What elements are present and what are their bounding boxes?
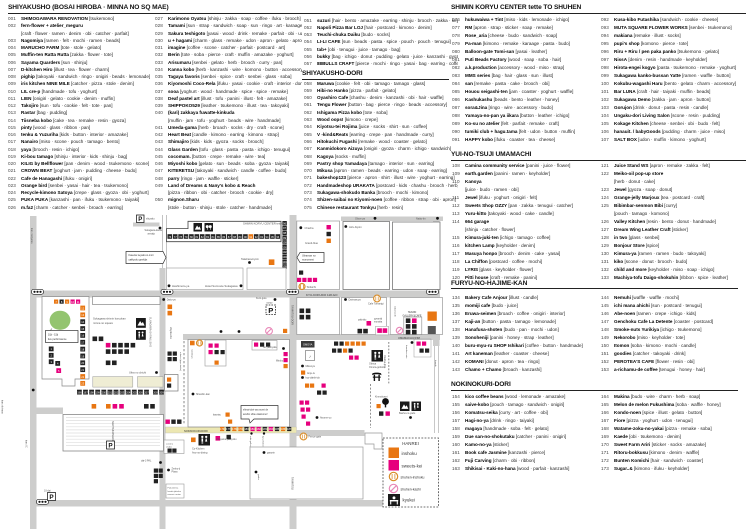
svg-text:itaru Koriyama: itaru Koriyama bbox=[30, 228, 33, 244]
svg-text:196: 196 bbox=[77, 390, 82, 394]
svg-text:Ultra no chichi: Ultra no chichi bbox=[129, 370, 146, 374]
svg-text:204: 204 bbox=[126, 390, 131, 394]
svg-text:Anje-ru: Anje-ru bbox=[307, 372, 316, 375]
svg-text:itaru eki-mae: itaru eki-mae bbox=[1, 400, 4, 414]
svg-text:200: 200 bbox=[102, 390, 107, 394]
svg-text:197: 197 bbox=[83, 390, 88, 394]
svg-text:Grand-blue: Grand-blue bbox=[305, 241, 319, 245]
svg-text:shuhen-kashi: shuhen-kashi bbox=[401, 487, 421, 491]
svg-text:kasetsu: kasetsu bbox=[213, 414, 222, 417]
svg-text:201: 201 bbox=[108, 390, 113, 394]
svg-text:Plaza: Plaza bbox=[172, 471, 179, 474]
svg-text:TAIMATSU: TAIMATSU bbox=[291, 477, 295, 490]
svg-text:u-kairo (ippo-tsuko): u-kairo (ippo-tsuko) bbox=[179, 352, 182, 371]
svg-text:sanshu: sanshu bbox=[166, 443, 174, 445]
svg-text:kyu-shoten: kyu-shoten bbox=[262, 436, 265, 447]
svg-text:178: 178 bbox=[232, 427, 237, 431]
svg-text:Fence-gate: Fence-gate bbox=[309, 436, 322, 439]
svg-text:OMOYA: OMOYA bbox=[303, 343, 313, 347]
svg-text:anshin shite okaimono!: anshin shite okaimono! bbox=[243, 413, 268, 416]
svg-text:SUKAGAWA-SHIYAKUSHO: SUKAGAWA-SHIYAKUSHO bbox=[149, 317, 152, 347]
svg-text:Obon-ya: Obon-ya bbox=[355, 217, 366, 221]
svg-text:100: 100 bbox=[282, 241, 287, 245]
svg-text:P: P bbox=[108, 443, 113, 450]
svg-text:annaijo: annaijo bbox=[148, 234, 156, 236]
svg-text:warabi-ya: warabi-ya bbox=[191, 349, 194, 359]
svg-text:Naito-iin: Naito-iin bbox=[416, 217, 426, 221]
svg-text:Otakiya-jinja: Otakiya-jinja bbox=[383, 355, 386, 369]
svg-text:198: 198 bbox=[89, 390, 94, 394]
svg-text:renmei center: renmei center bbox=[168, 493, 182, 496]
svg-text:180: 180 bbox=[244, 427, 249, 431]
svg-text:KYU-KOKUDO 118-GO: KYU-KOKUDO 118-GO bbox=[306, 293, 338, 297]
svg-text:minna no square: minna no square bbox=[93, 321, 114, 325]
svg-text:Mikunya: Mikunya bbox=[306, 365, 316, 368]
svg-text:P: P bbox=[268, 306, 273, 315]
svg-text:monument: monument bbox=[302, 259, 314, 262]
svg-text:Kinmokusei: Kinmokusei bbox=[375, 395, 388, 398]
svg-text:182: 182 bbox=[257, 427, 262, 431]
svg-text:208: 208 bbox=[153, 390, 158, 394]
svg-text:ganko: ganko bbox=[257, 474, 259, 481]
svg-text:177: 177 bbox=[226, 427, 231, 431]
svg-text:187: 187 bbox=[287, 427, 292, 431]
svg-text:kyu-daishi-do: kyu-daishi-do bbox=[306, 377, 321, 380]
svg-text:Kasetsu keyaki-no-mori: Kasetsu keyaki-no-mori bbox=[129, 254, 154, 257]
svg-text:Miruku: Miruku bbox=[276, 360, 284, 363]
svg-text:nakamachi: nakamachi bbox=[394, 306, 396, 317]
svg-text:203: 203 bbox=[120, 390, 125, 394]
svg-text:dai-3 PAL: dai-3 PAL bbox=[141, 460, 152, 463]
svg-text:Shashin-kan: Shashin-kan bbox=[196, 393, 211, 396]
svg-text:Obeya: Obeya bbox=[369, 363, 377, 366]
svg-text:Hotel Sunroute Sukagawa: Hotel Sunroute Sukagawa bbox=[205, 284, 238, 288]
svg-text:Basho-no-yado: Basho-no-yado bbox=[399, 412, 416, 415]
svg-text:P: P bbox=[49, 494, 54, 501]
svg-text:Ito-yakkyoku: Ito-yakkyoku bbox=[263, 346, 278, 349]
svg-text:103: 103 bbox=[282, 255, 287, 259]
svg-text:Fukushima: Fukushima bbox=[168, 488, 179, 490]
svg-text:TAIMATSU-DORI: TAIMATSU-DORI bbox=[291, 305, 295, 325]
svg-text:HANREI: HANREI bbox=[402, 441, 419, 446]
svg-text:shiyakusho: shiyakusho bbox=[169, 327, 172, 340]
svg-text:Takehara-byoin: Takehara-byoin bbox=[241, 257, 259, 261]
svg-text:104: 104 bbox=[282, 260, 287, 264]
svg-text:noki-gallery: noki-gallery bbox=[249, 436, 252, 448]
svg-text:207: 207 bbox=[144, 390, 149, 394]
svg-text:kyukei: kyukei bbox=[403, 498, 415, 503]
svg-text:102: 102 bbox=[282, 250, 287, 254]
svg-text:kurank: kurank bbox=[434, 360, 437, 367]
svg-text:inshoku: inshoku bbox=[402, 451, 418, 456]
svg-text:205: 205 bbox=[132, 390, 137, 394]
svg-text:186: 186 bbox=[281, 427, 286, 431]
svg-text:Cafe Tomarigi: Cafe Tomarigi bbox=[368, 302, 384, 305]
svg-text:studio: studio bbox=[166, 446, 173, 449]
svg-text:181: 181 bbox=[250, 427, 255, 431]
svg-text:Sukagawa shimin koryukan: Sukagawa shimin koryukan bbox=[93, 317, 126, 321]
svg-text:P: P bbox=[138, 217, 142, 223]
svg-text:kendo jidosha: kendo jidosha bbox=[168, 491, 182, 493]
svg-text:monaka: monaka bbox=[374, 322, 383, 324]
svg-text:pyramid: pyramid bbox=[374, 317, 383, 320]
svg-text:202: 202 bbox=[114, 390, 119, 394]
svg-text:Co-Kitchen: Co-Kitchen bbox=[192, 448, 205, 451]
svg-text:♪: ♪ bbox=[309, 355, 311, 359]
svg-text:209: 209 bbox=[159, 390, 164, 394]
svg-text:Torikichi: Torikichi bbox=[307, 285, 317, 289]
svg-text:Ultraman no: Ultraman no bbox=[302, 255, 316, 258]
svg-text:Hashimoto-ya: Hashimoto-ya bbox=[172, 284, 190, 288]
svg-text:Daimaruya: Daimaruya bbox=[349, 299, 362, 302]
svg-text:Kuro-gure: Kuro-gure bbox=[256, 297, 267, 300]
svg-text:yakkyoku genkijin: yakkyoku genkijin bbox=[129, 259, 148, 262]
svg-text:Chacha: Chacha bbox=[305, 226, 314, 230]
svg-text:NOKINOKURI-DORI: NOKINOKURI-DORI bbox=[184, 429, 208, 433]
svg-text:sweets-kei: sweets-kei bbox=[402, 464, 423, 469]
svg-text:kuranku-route: kuranku-route bbox=[405, 345, 408, 359]
svg-text:Sukagawa-kanko: Sukagawa-kanko bbox=[145, 230, 163, 232]
svg-text:10-dai: 10-dai bbox=[44, 489, 51, 492]
svg-text:Aizome-yu: Aizome-yu bbox=[320, 417, 332, 420]
svg-text:10ji - 15ji: 10ji - 15ji bbox=[48, 333, 58, 336]
svg-text:184: 184 bbox=[269, 427, 274, 431]
svg-text:yuryo: yuryo bbox=[267, 301, 274, 304]
svg-text:shiyaku: shiyaku bbox=[146, 218, 155, 221]
svg-text:gasorin: gasorin bbox=[267, 452, 276, 455]
svg-text:185: 185 bbox=[275, 427, 280, 431]
svg-text:SHIMIN KORYU CENTER tette: SHIMIN KORYU CENTER tette bbox=[243, 222, 282, 226]
svg-text:183: 183 bbox=[263, 427, 268, 431]
svg-text:Aizu-biyoin: Aizu-biyoin bbox=[349, 225, 362, 229]
svg-text:yakiniku: yakiniku bbox=[358, 319, 367, 321]
svg-text:199: 199 bbox=[96, 390, 101, 394]
svg-text:206: 206 bbox=[138, 390, 143, 394]
svg-text:shinai-dori wa osumi de: shinai-dori wa osumi de bbox=[243, 409, 269, 412]
svg-text:Asu-no-dining: Asu-no-dining bbox=[192, 451, 208, 454]
svg-text:179: 179 bbox=[238, 427, 243, 431]
svg-text:101: 101 bbox=[282, 245, 287, 249]
svg-text:176: 176 bbox=[220, 427, 225, 431]
svg-text:UMAMACHI-DORI: UMAMACHI-DORI bbox=[398, 336, 420, 340]
svg-text:shuhen-inshoku: shuhen-inshoku bbox=[401, 475, 425, 479]
svg-text:Omura-gofuku: Omura-gofuku bbox=[369, 366, 385, 369]
svg-text:Daito-ya: Daito-ya bbox=[167, 299, 177, 302]
svg-text:live performance: live performance bbox=[48, 338, 67, 341]
svg-text:itaru IC: itaru IC bbox=[25, 440, 28, 448]
